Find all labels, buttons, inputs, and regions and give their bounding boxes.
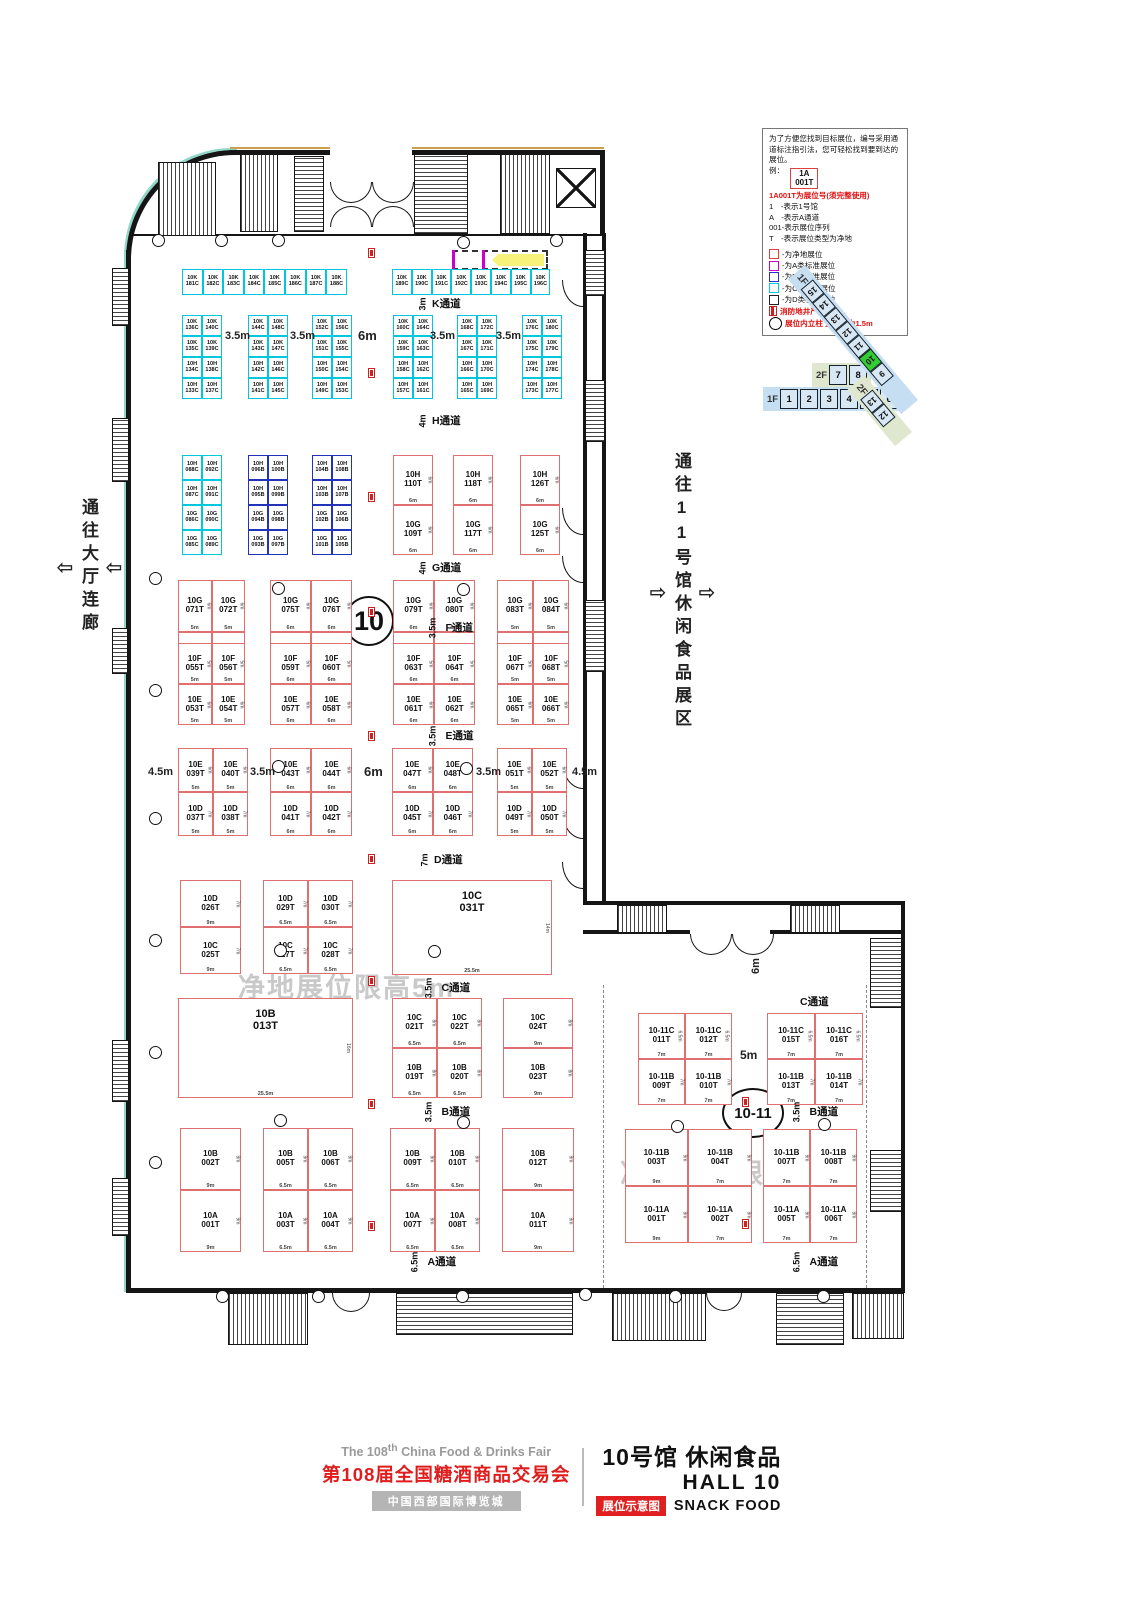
special-booth-outline	[452, 250, 548, 270]
fair-en-pre: The 108	[341, 1445, 388, 1459]
booth-height-dim: 6m	[554, 477, 560, 484]
booth-10-11B-003T: 10-11B003T9m9m	[625, 1129, 688, 1186]
booth-number: 182C	[206, 282, 219, 288]
booth-width-dim: 5m	[533, 829, 566, 835]
right-arrow-icon: ⇨	[645, 580, 669, 604]
booth-height-dim: 7m	[726, 1079, 732, 1086]
fire-well-marker	[368, 854, 375, 864]
booth-width-dim: 6.5m	[436, 1245, 479, 1251]
aisle-label-C通道: C通道	[800, 994, 829, 1009]
booth-number: 013T	[253, 1021, 278, 1033]
title-block: The 108th China Food & Drinks Fair 第108届…	[322, 1438, 781, 1516]
highlight-arrow	[492, 254, 544, 266]
booth-number: 016T	[830, 1036, 848, 1045]
aisle-name: E通道	[446, 728, 474, 743]
booth-10K-193C: 10K193C	[471, 269, 491, 295]
fire-well-marker	[368, 492, 375, 502]
aisle-label-K通道: 3mK通道	[416, 296, 461, 311]
booth-10K-192C: 10K192C	[451, 269, 471, 295]
booth-10H-087C: 10H087C	[182, 480, 202, 505]
booth-10H-126T: 10H126T6m6m	[520, 455, 560, 505]
booth-10K-188C: 10K188C	[326, 269, 347, 295]
booth-number: 154C	[335, 368, 348, 374]
booth-width-dim: 7m	[639, 1052, 684, 1058]
booth-width-dim: 6.5m	[438, 1091, 481, 1097]
booth-10H-103B: 10H103B	[312, 480, 332, 505]
booth-number: 065T	[506, 705, 524, 714]
booth-number: 173C	[525, 389, 538, 395]
booth-width-dim: 5m	[498, 718, 532, 724]
booth-number: 059T	[281, 664, 299, 673]
title-divider	[582, 1448, 584, 1506]
booth-10H-165C: 10H165C	[457, 378, 477, 399]
booth-number: 088C	[185, 468, 198, 474]
pillar-column	[272, 582, 285, 595]
booth-10H-137C: 10H137C	[202, 378, 222, 399]
plan-type-badge: 展位示意图	[596, 1496, 666, 1516]
booth-number: 162C	[416, 368, 429, 374]
booth-10B-019T: 10B019T6.5m8m	[392, 1048, 437, 1098]
booth-height-dim: 7m	[207, 811, 213, 818]
example-booth-line1: 1A	[799, 169, 809, 178]
booth-height-dim: 6.5m	[854, 1030, 860, 1041]
booth-height-dim: 7m	[347, 900, 353, 907]
booth-number: 030T	[321, 904, 339, 913]
booth-number: 134C	[185, 368, 198, 374]
booth-number: 105B	[335, 543, 348, 549]
booth-10A-007T: 10A007T6.5m9m	[390, 1190, 435, 1252]
aisle-label-G通道: 4mG通道	[416, 560, 461, 575]
booth-number: 109T	[404, 530, 422, 539]
booth-number: 101B	[315, 543, 328, 549]
booth-10D-049T: 10D049T5m7m	[497, 792, 532, 836]
stair-block	[112, 1040, 129, 1102]
category-en: SNACK FOOD	[674, 1498, 781, 1514]
booth-10G-085C: 10G085C	[182, 530, 202, 555]
booth-10H-161C: 10H161C	[413, 378, 433, 399]
booth-width-dim: 5m	[179, 625, 211, 631]
door-arc	[562, 508, 583, 535]
booth-10H-173C: 10H173C	[522, 378, 542, 399]
booth-10K-155C: 10K155C	[332, 336, 352, 357]
booth-10K-195C: 10K195C	[511, 269, 531, 295]
booth-width-dim: 6m	[435, 718, 474, 724]
pillar-column	[550, 234, 563, 247]
booth-10H-169C: 10H169C	[477, 378, 497, 399]
booth-number: 021T	[405, 1023, 423, 1032]
booth-number: 107B	[335, 493, 348, 499]
booth-number: 019T	[405, 1073, 423, 1082]
legend-swatch-color	[769, 295, 779, 305]
booth-number: 003T	[276, 1221, 294, 1230]
booth-number: 067T	[506, 664, 524, 673]
booth-number: 028T	[321, 951, 339, 960]
fire-well-fill	[744, 1099, 747, 1105]
booth-10H-095B: 10H095B	[248, 480, 268, 505]
booth-number: 042T	[322, 814, 340, 823]
booth-10F-063T: 10F063T6m5m	[393, 643, 434, 684]
gap-dim-label: 5m	[740, 1048, 757, 1062]
booth-number: 099B	[271, 493, 284, 499]
booth-height-dim: 7m	[467, 811, 473, 818]
booth-width-dim: 6.5m	[309, 1245, 352, 1251]
booth-height-dim: 8m	[476, 1020, 482, 1027]
booth-10K-175C: 10K175C	[522, 336, 542, 357]
booth-width-dim: 6.5m	[309, 920, 352, 926]
booth-10A-011T: 10A011T9m9m	[502, 1190, 574, 1252]
booth-height-dim: 7m	[235, 900, 241, 907]
booth-number: 163C	[416, 347, 429, 353]
booth-10H-088C: 10H088C	[182, 455, 202, 480]
booth-10E-054T: 10E054T5m6m	[212, 684, 246, 725]
booth-width-dim: 7m	[811, 1236, 856, 1242]
booth-number: 141C	[251, 389, 264, 395]
booth-height-dim: 9m	[804, 1211, 810, 1218]
booth-number: 029T	[276, 904, 294, 913]
booth-10H-104B: 10H104B	[312, 455, 332, 480]
booth-10C-024T: 10C024T9m8m	[503, 998, 573, 1048]
booth-10E-057T: 10E057T6m6m	[270, 684, 311, 725]
booth-number: 178C	[545, 368, 558, 374]
booth-height-dim: 6m	[561, 767, 567, 774]
booth-number: 190C	[415, 282, 428, 288]
booth-number: 179C	[545, 347, 558, 353]
booth-10B-005T: 10B005T6.5m9m	[263, 1128, 308, 1190]
booth-number: 053T	[186, 705, 204, 714]
booth-number: 020T	[450, 1073, 468, 1082]
aisle-label-A通道: 6.5mA通道	[786, 1254, 838, 1269]
aisle-width-dim: 3m	[418, 297, 428, 310]
aisle-name: H通道	[432, 413, 461, 428]
stair-block	[112, 418, 129, 482]
booth-10K-139C: 10K139C	[202, 336, 222, 357]
booth-width-dim: 7m	[689, 1179, 751, 1185]
booth-10F-068T: 10F068T5m5m	[533, 643, 569, 684]
booth-number: 011T	[653, 1036, 671, 1045]
booth-number: 144C	[251, 326, 264, 332]
booth-10K-168C: 10K168C	[457, 315, 477, 336]
booth-height-dim: 6m	[427, 527, 433, 534]
booth-10H-092C: 10H092C	[202, 455, 222, 480]
booth-width-dim: 7m	[639, 1098, 684, 1104]
booth-10H-100B: 10H100B	[268, 455, 288, 480]
booth-10K-190C: 10K190C	[412, 269, 432, 295]
booth-width-dim: 6m	[521, 548, 559, 554]
booth-number: 143C	[251, 347, 264, 353]
hall-10-11-badge-text: 10-11	[734, 1105, 772, 1122]
booth-10F-067T: 10F067T5m5m	[497, 643, 533, 684]
booth-number: 104B	[315, 468, 328, 474]
booth-number: 098B	[271, 518, 284, 524]
pillar-column	[149, 1046, 162, 1059]
booth-number: 160C	[396, 326, 409, 332]
booth-10F-055T: 10F055T5m5m	[178, 643, 212, 684]
booth-10E-039T: 10E039T5m6m	[178, 748, 213, 792]
booth-10F-059T: 10F059T6m5m	[270, 643, 311, 684]
booth-height-dim: 6m	[487, 527, 493, 534]
booth-number: 189C	[395, 282, 408, 288]
booth-10K-147C: 10K147C	[268, 336, 288, 357]
booth-number: 009T	[652, 1082, 670, 1091]
booth-width-dim: 6m	[394, 548, 432, 554]
booth-width-dim: 6m	[312, 718, 351, 724]
booth-number: 055T	[186, 664, 204, 673]
booth-number: 010T	[699, 1082, 717, 1091]
booth-height-dim: 5m	[205, 660, 211, 667]
booth-number: 006T	[321, 1159, 339, 1168]
booth-width-dim: 5m	[498, 677, 532, 683]
legend-code-lines: 1 -表示1号馆A -表示A通道001-表示展位序列T -表示展位类型为净地	[769, 202, 901, 245]
fair-en-post: China Food & Drinks Fair	[398, 1445, 552, 1459]
fire-well-marker	[368, 248, 375, 258]
aisle-width-dim: 3.5m	[427, 725, 437, 746]
aisle-name: G通道	[432, 560, 461, 575]
booth-width-dim: 9m	[503, 1245, 573, 1251]
fire-well-marker	[368, 1221, 375, 1231]
aisle-label-D通道: 7mD通道	[418, 852, 463, 867]
pillar-column	[149, 572, 162, 585]
booth-width-dim: 9m	[503, 1183, 573, 1189]
booth-number: 024T	[529, 1023, 547, 1032]
booth-width-dim: 9m	[181, 967, 240, 973]
booth-number: 048T	[444, 770, 462, 779]
booth-height-dim: 5m	[428, 660, 434, 667]
fair-title-cn: 第108届全国糖酒商品交易会	[322, 1461, 570, 1487]
booth-10G-105B: 10G105B	[332, 530, 352, 555]
booth-10C-021T: 10C021T6.5m8m	[392, 998, 437, 1048]
booth-number: 011T	[529, 1221, 547, 1230]
pillar-column	[149, 812, 162, 825]
booth-number: 014T	[830, 1082, 848, 1091]
fire-well-marker	[368, 368, 375, 378]
legend-example-label: 例：	[769, 166, 784, 177]
booth-number: 049T	[505, 814, 523, 823]
booth-10H-133C: 10H133C	[182, 378, 202, 399]
booth-height-dim: 6m	[527, 701, 533, 708]
booth-number: 184C	[248, 282, 261, 288]
booth-10-11A-002T: 10-11A002T7m9m	[688, 1186, 752, 1243]
booth-10C-028T: 10C028T6.5m7m	[308, 927, 353, 974]
aisle-name: C通道	[442, 980, 471, 995]
gap-dim-label: 3.5m	[430, 330, 455, 342]
booth-number: 196C	[534, 282, 547, 288]
booth-number: 076T	[322, 606, 340, 615]
booth-number: 145C	[271, 389, 284, 395]
booth-10E-061T: 10E061T6m6m	[393, 684, 434, 725]
booth-10D-026T: 10D026T9m7m	[180, 880, 241, 927]
booth-number: 185C	[268, 282, 281, 288]
aisle-width-dim: 4m	[418, 561, 428, 574]
booth-width-dim: 6m	[312, 677, 351, 683]
booth-width-dim: 6m	[271, 785, 310, 791]
booth-10D-037T: 10D037T5m7m	[178, 792, 213, 836]
booth-width-dim: 6.5m	[264, 1183, 307, 1189]
booth-10G-117T: 10G117T6m6m	[453, 505, 493, 555]
example-booth-line2: 001T	[795, 178, 813, 187]
booth-height-dim: 6m	[563, 603, 569, 610]
stair-block	[228, 1293, 308, 1345]
booth-number: 085C	[185, 543, 198, 549]
booth-height-dim: 7m	[426, 811, 432, 818]
booth-height-dim: 6m	[426, 767, 432, 774]
aisle-width-dim: 6.5m	[409, 1251, 419, 1272]
booth-height-dim: 7m	[347, 947, 353, 954]
booth-height-dim: 9m	[682, 1211, 688, 1218]
booth-10-11B-008T: 10-11B008T7m9m	[810, 1129, 857, 1186]
booth-height-dim: 6m	[346, 767, 352, 774]
booth-10K-184C: 10K184C	[244, 269, 265, 295]
stair-block	[158, 162, 216, 236]
booth-10E-040T: 10E040T5m6m	[213, 748, 248, 792]
pillar-column	[579, 1288, 592, 1301]
booth-10F-060T: 10F060T6m5m	[311, 643, 352, 684]
booth-number: 015T	[782, 1036, 800, 1045]
booth-number: 044T	[322, 770, 340, 779]
pillar-column	[274, 1114, 287, 1127]
booth-width-dim: 5m	[179, 677, 211, 683]
fire-well-fill	[370, 250, 373, 256]
booth-10K-144C: 10K144C	[248, 315, 268, 336]
booth-height-dim: 16m	[345, 1043, 351, 1053]
door-arc	[562, 556, 583, 583]
booth-10K-167C: 10K167C	[457, 336, 477, 357]
booth-number: 002T	[711, 1215, 729, 1224]
booth-10K-159C: 10K159C	[393, 336, 413, 357]
booth-height-dim: 9m	[682, 1154, 688, 1161]
booth-10K-191C: 10K191C	[432, 269, 452, 295]
booth-10K-135C: 10K135C	[182, 336, 202, 357]
booth-number: 026T	[201, 904, 219, 913]
booth-width-dim: 6m	[454, 498, 492, 504]
booth-height-dim: 7m	[561, 811, 567, 818]
booth-10G-093B: 10G093B	[248, 530, 268, 555]
booth-width-dim: 5m	[213, 677, 245, 683]
stair-block	[414, 154, 468, 234]
booth-width-dim: 6m	[271, 829, 310, 835]
booth-height-dim: 7m	[346, 811, 352, 818]
booth-number: 164C	[416, 326, 429, 332]
booth-number: 025T	[201, 951, 219, 960]
booth-height-dim: 6m	[469, 701, 475, 708]
fire-well-fill	[370, 1101, 373, 1107]
booth-10H-177C: 10H177C	[542, 378, 562, 399]
booth-height-dim: 8m	[567, 1070, 573, 1077]
booth-number: 013T	[782, 1082, 800, 1091]
booth-width-dim: 6m	[394, 718, 433, 724]
stair-block	[112, 1178, 129, 1236]
booth-width-dim: 6.5m	[391, 1245, 434, 1251]
pillar-column	[456, 1290, 469, 1303]
legend-swatch-label: -为净地展位	[782, 249, 823, 260]
fire-well-fill	[744, 1221, 747, 1227]
booth-height-dim: 9m	[302, 1218, 308, 1225]
booth-height-dim: 6m	[526, 767, 532, 774]
booth-number: 007T	[777, 1158, 795, 1167]
booth-10H-142C: 10H142C	[248, 357, 268, 378]
hall-title-cn: 10号馆 休闲食品	[602, 1438, 781, 1472]
booth-10-11B-007T: 10-11B007T7m9m	[763, 1129, 810, 1186]
booth-height-dim: 6m	[487, 477, 493, 484]
booth-width-dim: 6m	[271, 677, 310, 683]
booth-number: 136C	[185, 326, 198, 332]
booth-width-dim: 6m	[521, 498, 559, 504]
booth-number: 138C	[205, 368, 218, 374]
booth-number: 023T	[529, 1073, 547, 1082]
booth-10K-196C: 10K196C	[531, 269, 551, 295]
booth-number: 071T	[186, 606, 204, 615]
legend-code-line: 1 -表示1号馆	[769, 202, 901, 213]
booth-height-dim: 7m	[235, 947, 241, 954]
booth-10G-083T: 10G083T5m6m	[497, 580, 533, 632]
booth-10K-179C: 10K179C	[542, 336, 562, 357]
booth-number: 157C	[396, 389, 409, 395]
booth-width-dim: 6.5m	[309, 1183, 352, 1189]
pillar-column	[817, 1290, 830, 1303]
stair-block	[870, 1150, 902, 1212]
stair-block	[617, 905, 667, 933]
aisle-name: F通道	[446, 620, 473, 635]
booth-number: 008T	[824, 1158, 842, 1167]
booth-10-11C-015T: 10-11C015T7m6.5m	[767, 1013, 815, 1059]
booth-number: 108B	[335, 468, 348, 474]
booth-width-dim: 6.5m	[436, 1183, 479, 1189]
booth-height-dim: 9m	[804, 1154, 810, 1161]
booth-width-dim: 7m	[764, 1179, 809, 1185]
booth-height-dim: 9m	[851, 1154, 857, 1161]
booth-number: 159C	[396, 347, 409, 353]
booth-number: 161C	[416, 389, 429, 395]
door-arc	[562, 862, 583, 889]
booth-number: 060T	[322, 664, 340, 673]
pillar-column	[149, 684, 162, 697]
stair-block	[396, 1293, 573, 1335]
booth-10K-160C: 10K160C	[393, 315, 413, 336]
pillar-column	[215, 234, 228, 247]
aisle-width-dim: 4m	[418, 414, 428, 427]
stair-block	[870, 938, 902, 1008]
left-direction-text: 通往大厅连廊	[76, 498, 101, 636]
booth-height-dim: 5m	[527, 660, 533, 667]
booth-10B-012T: 10B012T9m9m	[502, 1128, 574, 1190]
booth-width-dim: 9m	[181, 1183, 240, 1189]
booth-10C-031T: 10C031T25.5m14m	[392, 880, 552, 975]
gap-dim-label: 3.5m	[290, 330, 315, 342]
booth-number: 142C	[251, 368, 264, 374]
booth-number: 192C	[455, 282, 468, 288]
booth-number: 093B	[251, 543, 264, 549]
booth-10H-138C: 10H138C	[202, 357, 222, 378]
booth-width-dim: 7m	[764, 1236, 809, 1242]
booth-number: 135C	[185, 347, 198, 353]
pillar-column	[669, 1290, 682, 1303]
stair-block	[500, 154, 550, 234]
booth-number: 046T	[444, 814, 462, 823]
gap-dim-label: 3.5m	[476, 766, 501, 778]
booth-10G-089C: 10G089C	[202, 530, 222, 555]
booth-10A-001T: 10A001T9m9m	[180, 1190, 241, 1252]
booth-number: 045T	[403, 814, 421, 823]
booth-10K-189C: 10K189C	[392, 269, 412, 295]
aisle-label-F通道: 3.5mF通道	[422, 620, 473, 635]
booth-number: 061T	[404, 705, 422, 714]
booth-height-dim: 6m	[428, 603, 434, 610]
booth-height-dim: 6m	[305, 603, 311, 610]
booth-number: 148C	[271, 326, 284, 332]
booth-10K-194C: 10K194C	[491, 269, 511, 295]
booth-height-dim: 9m	[746, 1211, 752, 1218]
aisle-label-H通道: 4mH通道	[416, 413, 461, 428]
legend-example-note: 1A001T为展位号(须完整使用)	[769, 191, 901, 202]
